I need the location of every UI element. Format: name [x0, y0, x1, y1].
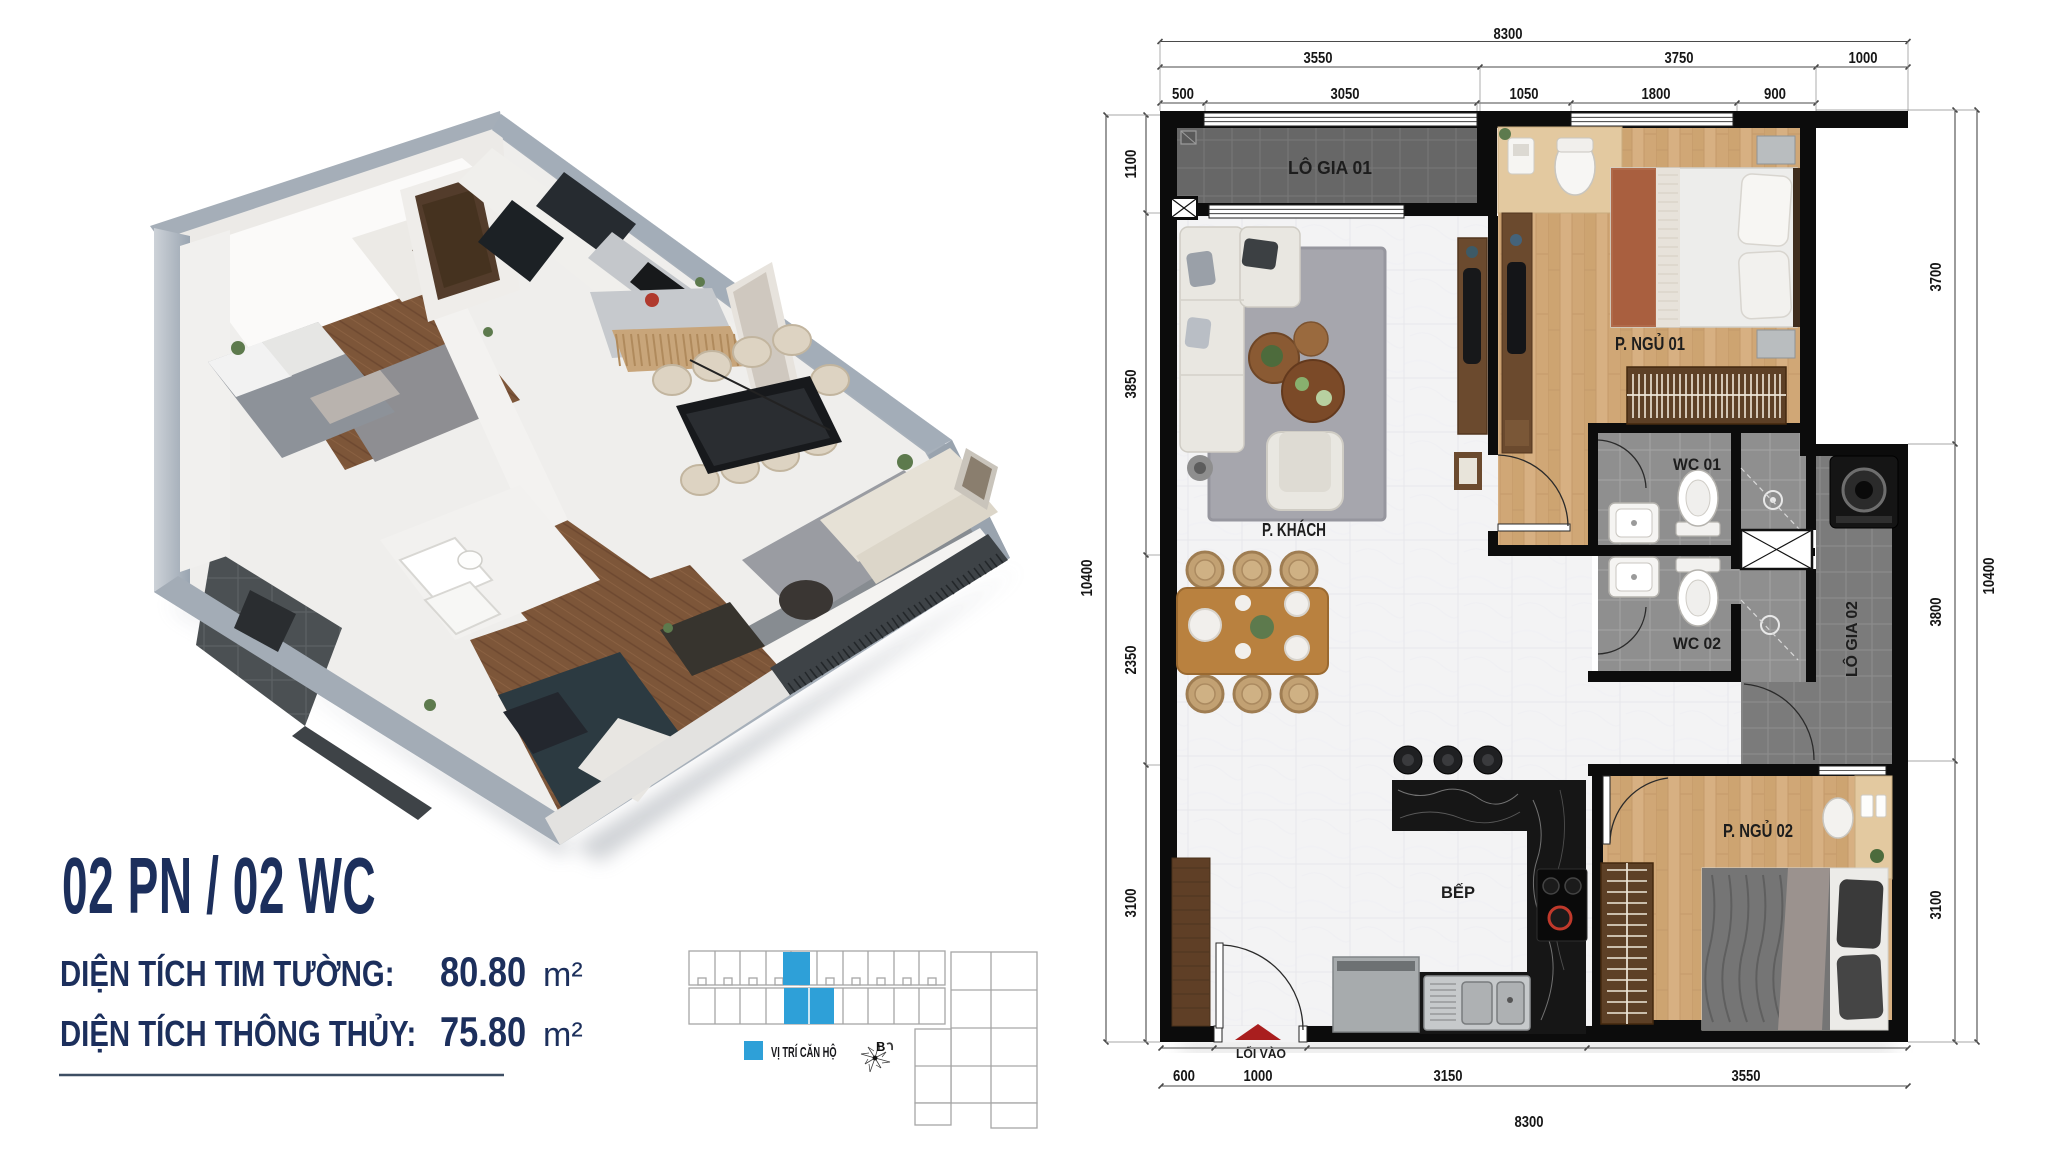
svg-text:WC 01: WC 01: [1673, 455, 1721, 474]
svg-text:1000: 1000: [1244, 1068, 1273, 1085]
svg-text:m²: m²: [543, 956, 583, 994]
svg-text:1050: 1050: [1510, 86, 1539, 103]
svg-text:3750: 3750: [1665, 50, 1694, 67]
svg-text:3550: 3550: [1732, 1068, 1761, 1085]
svg-text:3700: 3700: [1928, 262, 1945, 291]
svg-text:3050: 3050: [1331, 86, 1360, 103]
svg-text:75.80: 75.80: [440, 1009, 526, 1056]
svg-text:LÔ GIA 01: LÔ GIA 01: [1288, 157, 1372, 178]
svg-text:3550: 3550: [1304, 50, 1333, 67]
svg-text:8300: 8300: [1515, 1114, 1544, 1131]
svg-text:WC 02: WC 02: [1673, 634, 1721, 653]
svg-text:2350: 2350: [1123, 645, 1140, 674]
svg-text:3850: 3850: [1123, 369, 1140, 398]
svg-text:02 PN / 02 WC: 02 PN / 02 WC: [62, 841, 376, 930]
svg-text:P. NGỦ 02: P. NGỦ 02: [1723, 820, 1793, 841]
svg-text:DIỆN TÍCH TIM TƯỜNG:: DIỆN TÍCH TIM TƯỜNG:: [60, 953, 394, 994]
svg-text:3100: 3100: [1123, 888, 1140, 917]
svg-text:P. NGỦ 01: P. NGỦ 01: [1615, 333, 1685, 354]
svg-text:B: B: [876, 1039, 885, 1054]
svg-text:DIỆN TÍCH THÔNG THỦY:: DIỆN TÍCH THÔNG THỦY:: [60, 1012, 416, 1054]
svg-text:1000: 1000: [1849, 50, 1878, 67]
svg-text:P. KHÁCH: P. KHÁCH: [1262, 519, 1326, 540]
svg-text:3800: 3800: [1928, 597, 1945, 626]
svg-text:8300: 8300: [1494, 26, 1523, 43]
svg-text:900: 900: [1764, 86, 1786, 103]
svg-text:m²: m²: [543, 1016, 583, 1054]
svg-text:1100: 1100: [1123, 149, 1140, 178]
svg-text:3150: 3150: [1434, 1068, 1463, 1085]
svg-text:LÔ GIA 02: LÔ GIA 02: [1842, 601, 1861, 677]
svg-text:BẾP: BẾP: [1441, 883, 1475, 902]
svg-text:10400: 10400: [1079, 559, 1096, 596]
svg-text:1800: 1800: [1642, 86, 1671, 103]
svg-text:500: 500: [1172, 86, 1194, 103]
svg-text:VỊ TRÍ CĂN HỘ: VỊ TRÍ CĂN HỘ: [771, 1043, 837, 1061]
svg-text:80.80: 80.80: [440, 949, 526, 996]
svg-text:10400: 10400: [1981, 557, 1998, 594]
svg-text:600: 600: [1173, 1068, 1195, 1085]
svg-text:3100: 3100: [1928, 890, 1945, 919]
